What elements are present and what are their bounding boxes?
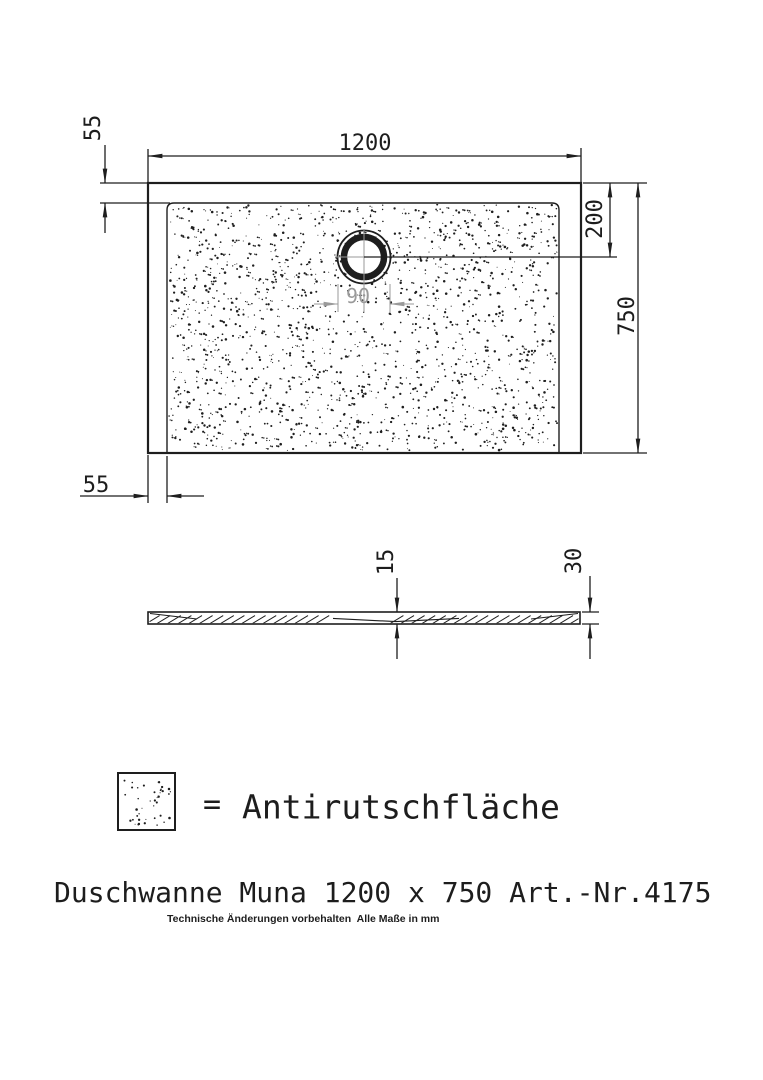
dim-center-thickness-label: 15 <box>376 549 398 576</box>
dim-top-inset-label: 55 <box>83 115 105 142</box>
dim-depth-label: 750 <box>617 296 639 336</box>
dim-drain-diameter-label: 90 <box>346 286 370 306</box>
drawing-title: Duschwanne Muna 1200 x 750 Art.-Nr.4175 <box>54 879 711 907</box>
legend-equals-sign: = <box>203 790 221 820</box>
dim-width-label: 1200 <box>339 133 392 155</box>
legend-label: Antirutschfläche <box>242 791 560 824</box>
technical-drawing-page: 1200 55 200 750 55 90 15 30 = Antirutsch… <box>0 0 763 1080</box>
dim-left-inset-label: 55 <box>83 475 110 497</box>
side-view <box>136 576 599 659</box>
drawing-footnote: Technische Änderungen vorbehalten Alle M… <box>167 914 439 925</box>
top-view <box>80 145 647 503</box>
legend-square <box>118 773 175 830</box>
dim-top-inset <box>100 145 170 233</box>
dim-edge-thickness <box>582 576 599 659</box>
dim-edge-thickness-label: 30 <box>564 548 586 575</box>
dim-drain-offset-label: 200 <box>585 199 607 239</box>
legend-texture <box>124 780 171 826</box>
profile-inner-lines <box>150 614 578 622</box>
legend-symbol <box>118 773 175 830</box>
